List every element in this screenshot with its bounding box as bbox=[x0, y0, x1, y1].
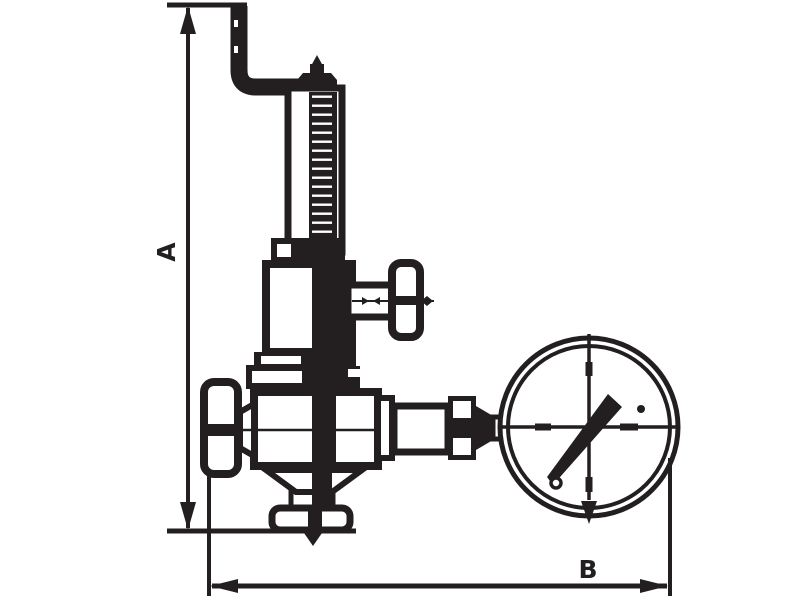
inlet-cap bbox=[202, 382, 240, 474]
pipe-highlight bbox=[234, 20, 238, 27]
arrow-down-icon bbox=[180, 502, 196, 530]
adjusting-cap bbox=[297, 55, 337, 88]
collar-highlight bbox=[277, 244, 291, 257]
outlet-nut-band bbox=[308, 508, 322, 530]
union-nut-slot bbox=[453, 438, 471, 455]
dimension-a-label: A bbox=[152, 242, 181, 262]
dial-dot bbox=[637, 405, 645, 413]
technical-drawing-canvas: A bbox=[0, 0, 800, 598]
reducer-cone bbox=[476, 406, 493, 450]
needle-counterweight bbox=[551, 478, 561, 488]
pipe-body bbox=[394, 406, 448, 452]
hex-highlight bbox=[348, 369, 362, 377]
side-tee-handle bbox=[348, 263, 434, 337]
valve-drawing: A bbox=[0, 0, 800, 598]
threaded-spring-stem bbox=[288, 88, 342, 252]
arrow-left-icon bbox=[210, 579, 238, 593]
pipe-highlight bbox=[234, 46, 238, 53]
bottom-outlet bbox=[266, 466, 362, 546]
hex-section bbox=[249, 368, 305, 386]
inlet-cap-band bbox=[202, 424, 240, 436]
union-nut-slot bbox=[453, 401, 471, 418]
threaded-rod bbox=[309, 92, 337, 250]
discharge-pipe bbox=[234, 6, 302, 87]
pipe-collar bbox=[378, 398, 392, 458]
arrow-right-icon bbox=[640, 579, 668, 593]
pressure-gauge bbox=[498, 334, 680, 524]
flow-arrow-icon bbox=[304, 533, 322, 546]
gauge-connection-pipe bbox=[378, 396, 516, 460]
cap-body bbox=[297, 64, 337, 88]
arrow-up-icon bbox=[180, 6, 196, 34]
discharge-pipe-path bbox=[239, 6, 302, 87]
outlet-stem bbox=[312, 466, 332, 510]
dimension-b-label: B bbox=[578, 555, 597, 584]
flange-highlight bbox=[261, 356, 301, 364]
